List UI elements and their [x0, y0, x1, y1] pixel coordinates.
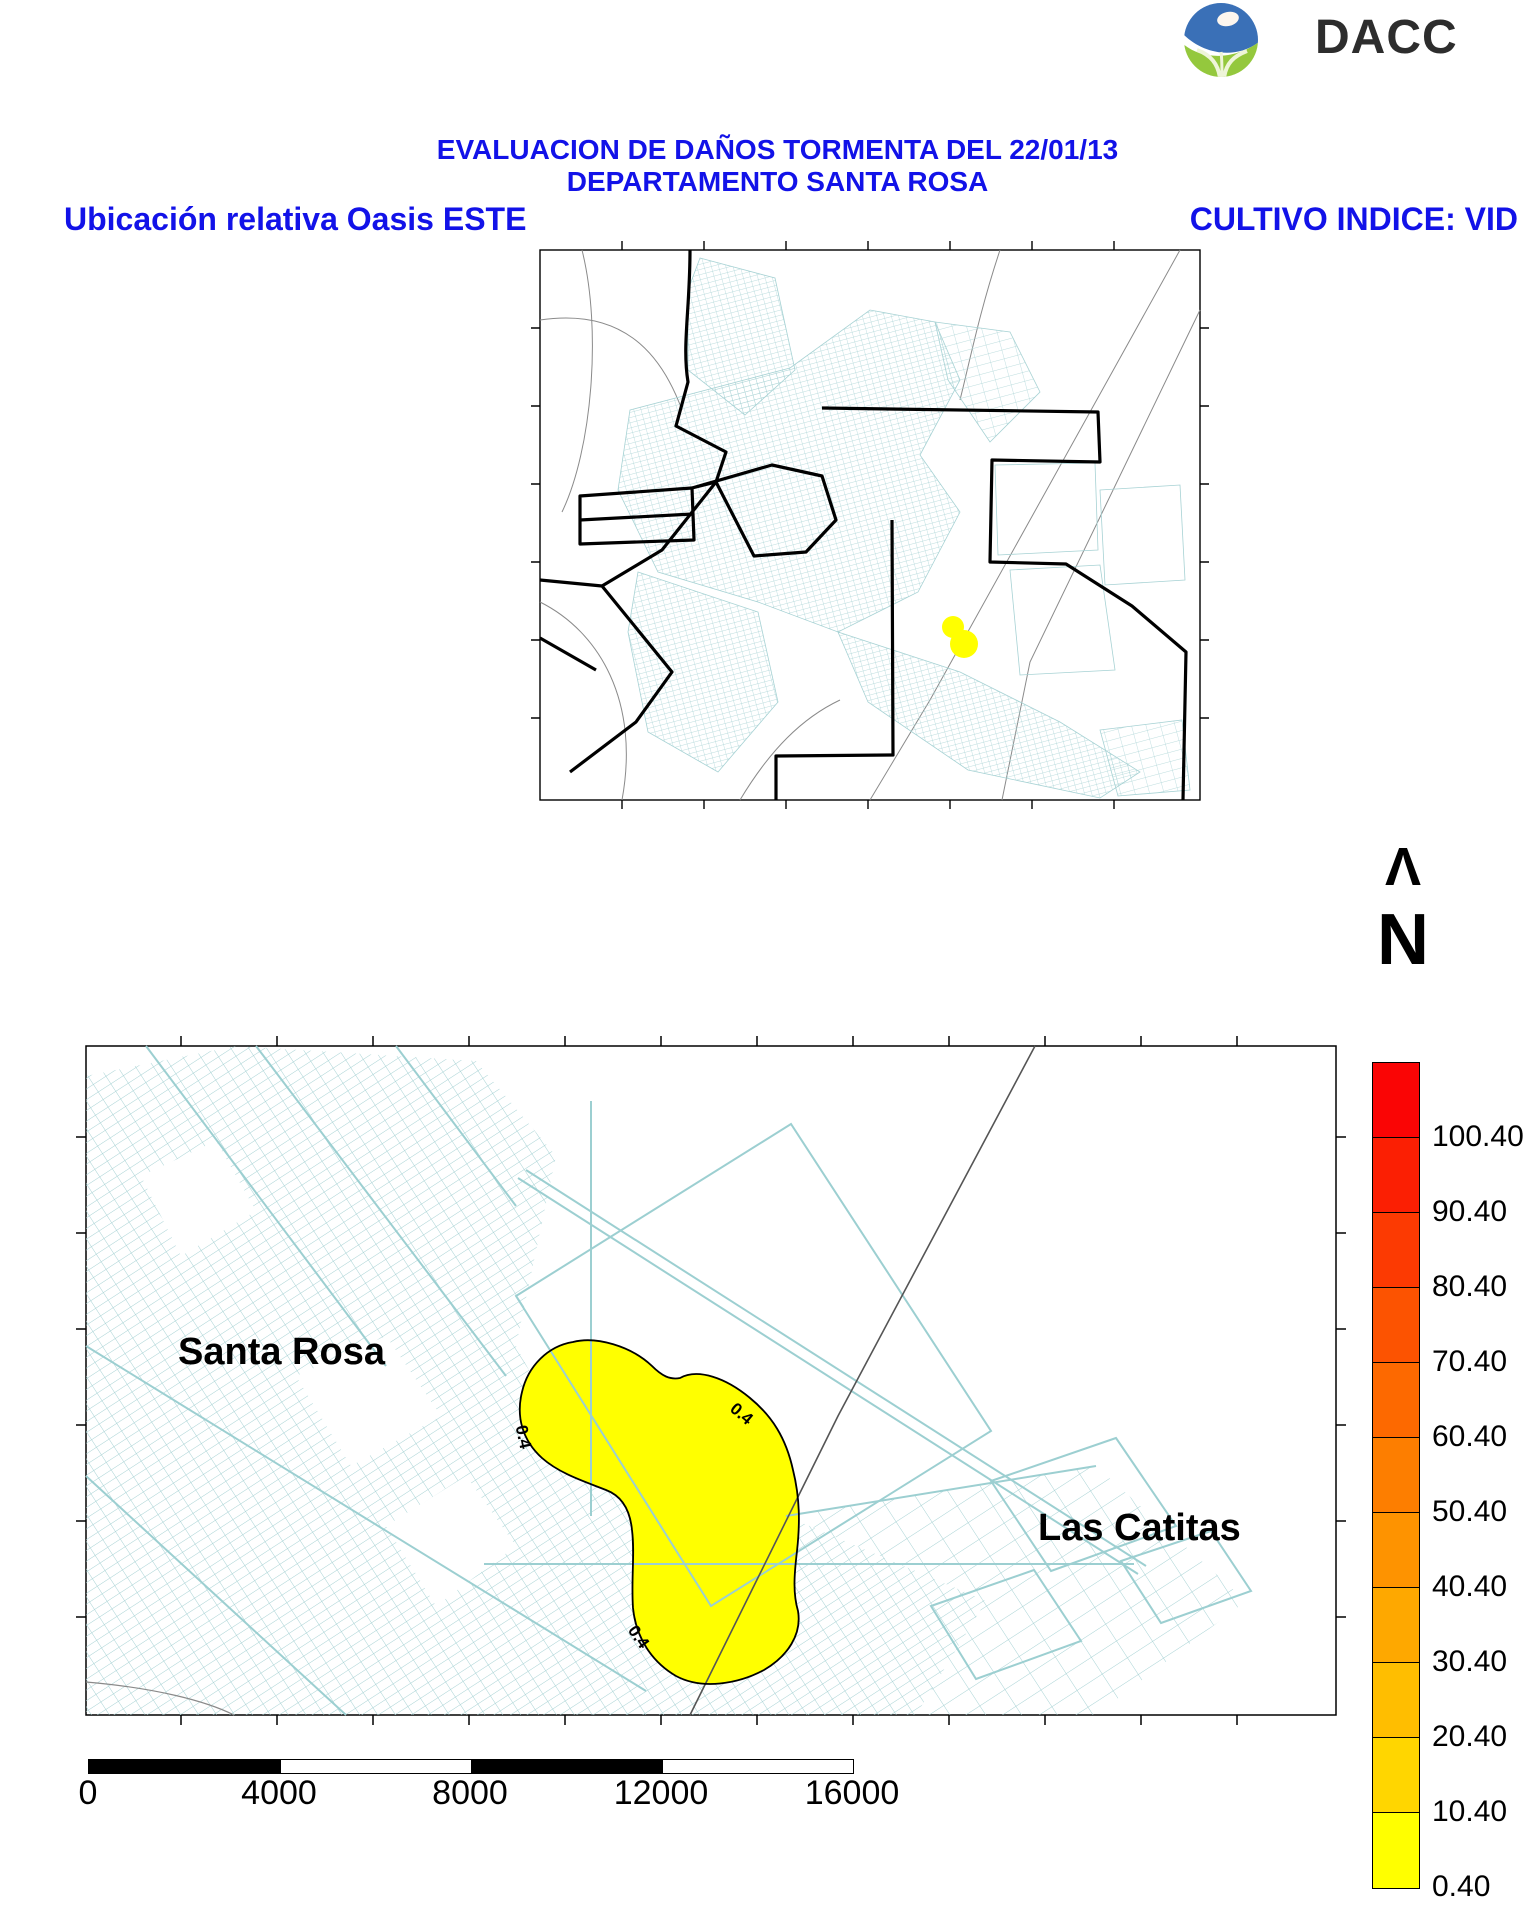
colorbar-segment: [1373, 1588, 1419, 1663]
page-title-line1: EVALUACION DE DAÑOS TORMENTA DEL 22/01/1…: [30, 134, 1525, 166]
colorbar-label: 0.40: [1432, 1871, 1525, 1903]
colorbar-label: 80.40: [1432, 1271, 1525, 1303]
colorbar-segment: [1373, 1063, 1419, 1138]
colorbar-segment: [1373, 1138, 1419, 1213]
dacc-logo: DACC: [1183, 0, 1523, 80]
scale-bar-segment: [89, 1760, 280, 1773]
colorbar-label: 90.40: [1432, 1196, 1525, 1228]
scale-bar-segment: [662, 1760, 854, 1773]
colorbar-label: 40.40: [1432, 1571, 1525, 1603]
colorbar-segment: [1373, 1738, 1419, 1813]
scale-bar-tick-label: 4000: [241, 1774, 317, 1813]
scale-bar-segment: [471, 1760, 662, 1773]
colorbar-segment: [1373, 1513, 1419, 1588]
main-map: 0.4 0.4 0.4 Santa Rosa Las Catitas: [74, 1034, 1348, 1727]
colorbar-label: 100.40: [1432, 1121, 1525, 1153]
scale-bar-tick-label: 8000: [432, 1774, 508, 1813]
colorbar-segment: [1373, 1363, 1419, 1438]
map-sheet: DACC EVALUACION DE DAÑOS TORMENTA DEL 22…: [0, 0, 1525, 1907]
colorbar-segment: [1373, 1213, 1419, 1288]
colorbar-label: 20.40: [1432, 1721, 1525, 1753]
colorbar-label: 30.40: [1432, 1646, 1525, 1678]
north-arrow: Λ N: [1368, 840, 1438, 972]
region-label-las-catitas: Las Catitas: [1038, 1507, 1241, 1549]
north-label: N: [1368, 908, 1438, 972]
relative-location-label: Ubicación relativa Oasis ESTE: [64, 201, 526, 238]
north-arrow-icon: Λ: [1368, 840, 1438, 894]
colorbar-segment: [1373, 1288, 1419, 1363]
colorbar-label: 70.40: [1432, 1346, 1525, 1378]
scale-bar-segment: [280, 1760, 472, 1773]
damage-colorbar: [1372, 1062, 1420, 1889]
dacc-logo-text: DACC: [1315, 10, 1458, 65]
scale-bar-tick-label: 16000: [805, 1774, 900, 1813]
colorbar-segment: [1373, 1813, 1419, 1888]
scale-bar-tick-label: 12000: [614, 1774, 709, 1813]
colorbar-label: 50.40: [1432, 1496, 1525, 1528]
overview-map: [528, 238, 1212, 812]
scale-bar: [88, 1759, 854, 1774]
colorbar-segment: [1373, 1663, 1419, 1738]
crop-index-label: CULTIVO INDICE: VID: [1190, 201, 1518, 238]
colorbar-segment: [1373, 1438, 1419, 1513]
scale-bar-tick-label: 0: [79, 1774, 98, 1813]
page-title-line2: DEPARTAMENTO SANTA ROSA: [30, 166, 1525, 198]
dacc-logo-icon: [1183, 2, 1259, 78]
colorbar-label: 10.40: [1432, 1796, 1525, 1828]
colorbar-label: 60.40: [1432, 1421, 1525, 1453]
region-label-santa-rosa: Santa Rosa: [178, 1331, 386, 1373]
